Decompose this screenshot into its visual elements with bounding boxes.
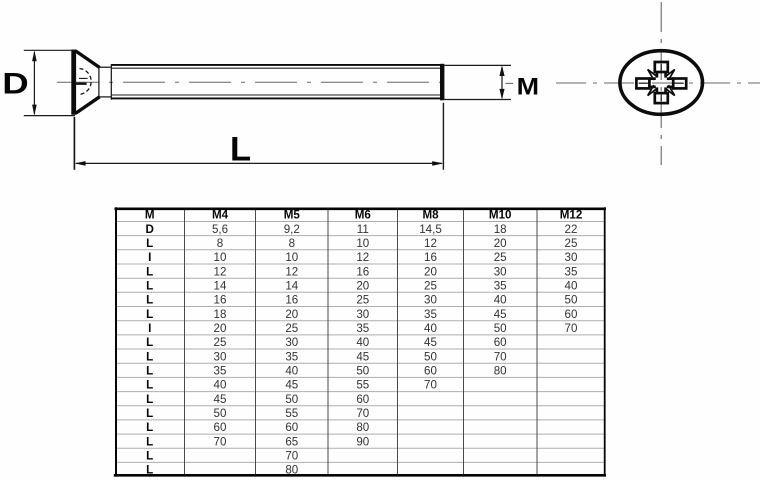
svg-text:60: 60 — [494, 336, 507, 349]
svg-text:45: 45 — [424, 336, 437, 349]
svg-text:20: 20 — [356, 280, 369, 293]
svg-text:L: L — [146, 464, 153, 477]
svg-text:60: 60 — [565, 308, 578, 321]
svg-text:8: 8 — [217, 237, 223, 250]
svg-text:12: 12 — [285, 265, 298, 278]
svg-text:30: 30 — [214, 350, 227, 363]
svg-text:I: I — [148, 322, 151, 335]
svg-text:M8: M8 — [422, 209, 439, 222]
svg-text:22: 22 — [565, 223, 578, 236]
svg-text:35: 35 — [356, 322, 369, 335]
svg-text:40: 40 — [424, 322, 437, 335]
svg-text:20: 20 — [424, 265, 437, 278]
svg-text:25: 25 — [356, 294, 369, 307]
svg-text:80: 80 — [285, 464, 298, 477]
svg-text:40: 40 — [494, 294, 507, 307]
svg-text:80: 80 — [494, 365, 507, 378]
svg-text:L: L — [146, 450, 153, 463]
svg-text:L: L — [146, 265, 153, 278]
svg-text:10: 10 — [214, 251, 227, 264]
svg-text:55: 55 — [285, 407, 298, 420]
svg-text:60: 60 — [285, 421, 298, 434]
svg-text:45: 45 — [494, 308, 507, 321]
svg-text:M5: M5 — [284, 209, 301, 222]
svg-text:40: 40 — [565, 280, 578, 293]
svg-text:30: 30 — [285, 336, 298, 349]
svg-text:10: 10 — [356, 237, 369, 250]
svg-text:8: 8 — [289, 237, 295, 250]
svg-text:30: 30 — [424, 294, 437, 307]
svg-text:L: L — [146, 393, 153, 406]
svg-text:35: 35 — [565, 265, 578, 278]
svg-text:16: 16 — [285, 294, 298, 307]
svg-text:25: 25 — [565, 237, 578, 250]
svg-text:M12: M12 — [560, 209, 583, 222]
svg-text:L: L — [146, 308, 153, 321]
svg-text:20: 20 — [285, 308, 298, 321]
svg-text:L: L — [146, 365, 153, 378]
svg-text:70: 70 — [565, 322, 578, 335]
svg-text:16: 16 — [356, 265, 369, 278]
svg-text:L: L — [146, 237, 153, 250]
svg-text:40: 40 — [214, 379, 227, 392]
svg-text:55: 55 — [356, 379, 369, 392]
svg-text:70: 70 — [285, 450, 298, 463]
svg-text:M: M — [517, 73, 539, 100]
svg-text:L: L — [146, 350, 153, 363]
svg-text:50: 50 — [424, 350, 437, 363]
svg-text:30: 30 — [356, 308, 369, 321]
svg-text:L: L — [146, 407, 153, 420]
svg-text:9,2: 9,2 — [284, 223, 300, 236]
svg-text:12: 12 — [424, 237, 437, 250]
svg-text:18: 18 — [494, 223, 507, 236]
svg-text:I: I — [148, 251, 151, 264]
svg-text:12: 12 — [214, 265, 227, 278]
svg-text:45: 45 — [285, 379, 298, 392]
svg-text:M: M — [145, 209, 155, 222]
svg-text:50: 50 — [565, 294, 578, 307]
svg-text:M10: M10 — [489, 209, 512, 222]
svg-text:35: 35 — [285, 350, 298, 363]
svg-text:L: L — [146, 379, 153, 392]
svg-text:70: 70 — [424, 379, 437, 392]
svg-text:20: 20 — [214, 322, 227, 335]
svg-text:45: 45 — [214, 393, 227, 406]
svg-text:M6: M6 — [355, 209, 372, 222]
svg-text:16: 16 — [214, 294, 227, 307]
svg-text:25: 25 — [494, 251, 507, 264]
svg-text:90: 90 — [356, 435, 369, 448]
svg-text:D: D — [2, 67, 28, 100]
svg-text:10: 10 — [285, 251, 298, 264]
svg-text:65: 65 — [285, 435, 298, 448]
svg-text:35: 35 — [424, 308, 437, 321]
svg-text:11: 11 — [357, 223, 369, 236]
svg-text:50: 50 — [214, 407, 227, 420]
svg-text:25: 25 — [285, 322, 298, 335]
svg-text:L: L — [146, 294, 153, 307]
svg-text:L: L — [146, 336, 153, 349]
svg-text:D: D — [146, 223, 154, 236]
svg-text:L: L — [146, 280, 153, 293]
svg-text:50: 50 — [356, 365, 369, 378]
svg-text:50: 50 — [494, 322, 507, 335]
svg-text:14,5: 14,5 — [419, 223, 442, 236]
svg-text:30: 30 — [565, 251, 578, 264]
svg-text:18: 18 — [214, 308, 227, 321]
svg-text:25: 25 — [214, 336, 227, 349]
svg-text:60: 60 — [214, 421, 227, 434]
svg-text:35: 35 — [494, 280, 507, 293]
svg-text:L: L — [146, 421, 153, 434]
svg-text:60: 60 — [424, 365, 437, 378]
svg-text:M4: M4 — [212, 209, 229, 222]
svg-text:70: 70 — [356, 407, 369, 420]
svg-text:25: 25 — [424, 280, 437, 293]
svg-text:12: 12 — [356, 251, 369, 264]
svg-text:20: 20 — [494, 237, 507, 250]
svg-text:70: 70 — [214, 435, 227, 448]
svg-text:45: 45 — [356, 350, 369, 363]
svg-text:40: 40 — [356, 336, 369, 349]
svg-text:16: 16 — [424, 251, 437, 264]
svg-text:L: L — [230, 130, 251, 168]
svg-text:14: 14 — [214, 280, 227, 293]
svg-text:70: 70 — [494, 350, 507, 363]
svg-text:80: 80 — [356, 421, 369, 434]
svg-text:30: 30 — [494, 265, 507, 278]
svg-text:40: 40 — [285, 365, 298, 378]
svg-text:60: 60 — [356, 393, 369, 406]
svg-text:L: L — [146, 435, 153, 448]
svg-text:14: 14 — [285, 280, 298, 293]
svg-text:5,6: 5,6 — [212, 223, 228, 236]
svg-text:50: 50 — [285, 393, 298, 406]
svg-text:35: 35 — [214, 365, 227, 378]
